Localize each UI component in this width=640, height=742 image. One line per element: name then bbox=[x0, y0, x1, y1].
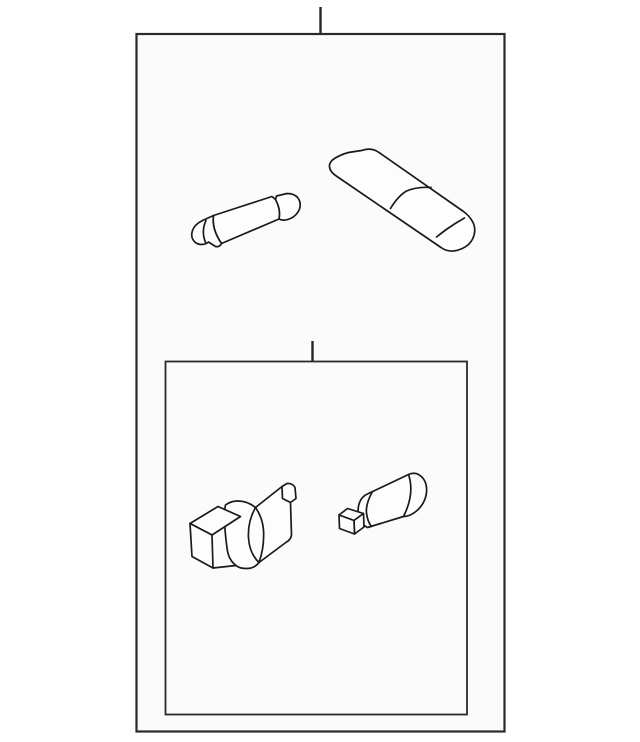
parts-diagram-page bbox=[0, 0, 640, 742]
diagram-canvas bbox=[0, 0, 640, 742]
